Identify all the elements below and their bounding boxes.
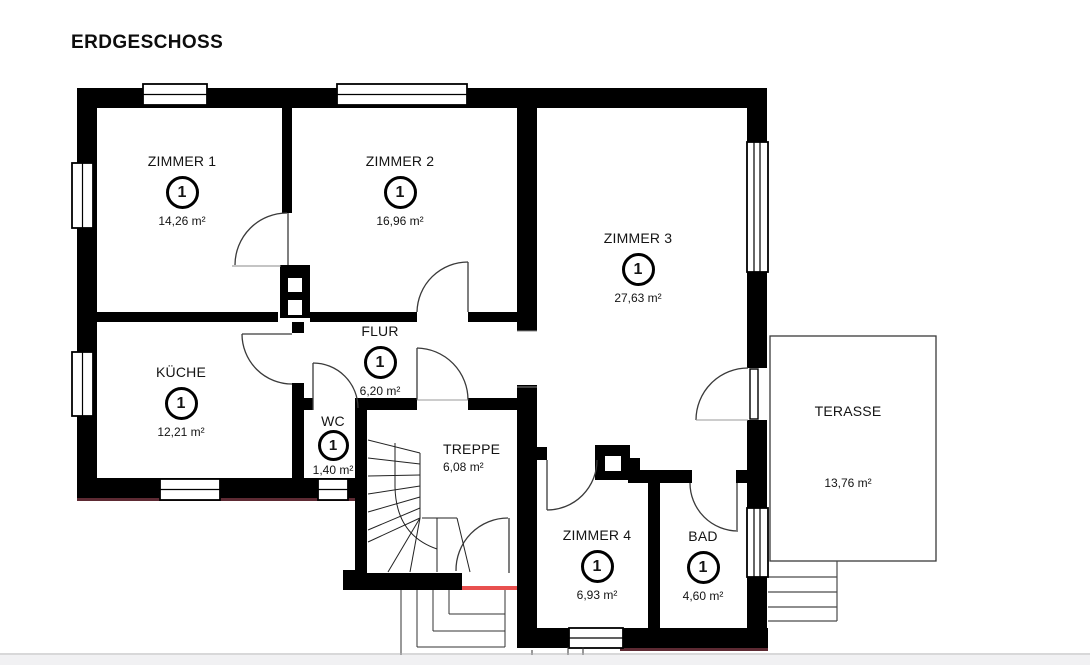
room-label-flur: FLUR 1 6,20 m² [320, 324, 440, 399]
room-area: 13,76 m² [824, 476, 871, 491]
room-marker-badge: 1 [687, 551, 720, 584]
room-label-kueche: KÜCHE 1 12,21 m² [121, 365, 241, 440]
room-name: FLUR [361, 324, 398, 338]
door-arc-zimmer4 [547, 460, 597, 510]
room-name: TERASSE [815, 404, 882, 418]
floorplan-page: ERDGESCHOSS ZIMMER 1 1 14,26 m² ZIMMER 2… [0, 0, 1090, 665]
room-name: TREPPE [443, 442, 500, 456]
room-name: BAD [688, 529, 717, 543]
room-area: 14,26 m² [158, 214, 205, 229]
room-name: ZIMMER 3 [604, 231, 673, 245]
room-area: 1,40 m² [313, 463, 354, 478]
room-marker-badge: 1 [384, 176, 417, 209]
room-name: ZIMMER 4 [563, 528, 632, 542]
door-arc-bad [690, 483, 738, 531]
room-marker-badge: 1 [364, 346, 397, 379]
room-label-terasse: TERASSE 13,76 m² [788, 404, 908, 491]
room-marker-badge: 1 [622, 253, 655, 286]
room-label-zimmer4: ZIMMER 4 1 6,93 m² [537, 528, 657, 603]
room-area: 6,08 m² [443, 460, 484, 475]
page-title: ERDGESCHOSS [71, 32, 223, 54]
room-name: KÜCHE [156, 365, 206, 379]
room-name: ZIMMER 2 [366, 154, 435, 168]
door-arc-terrace [696, 368, 748, 420]
room-area: 27,63 m² [614, 291, 661, 306]
room-area: 12,21 m² [157, 425, 204, 440]
room-area: 6,93 m² [577, 588, 618, 603]
room-area: 6,20 m² [360, 384, 401, 399]
door-leaf-terrace [750, 369, 758, 419]
room-label-wc: WC 1 1,40 m² [273, 414, 393, 478]
room-label-bad: BAD 1 4,60 m² [643, 529, 763, 604]
room-label-zimmer1: ZIMMER 1 1 14,26 m² [122, 154, 242, 229]
door-arc-zimmer2 [417, 262, 468, 312]
terrace-steps [768, 561, 837, 621]
page-bottom-edge [0, 654, 1090, 665]
room-marker-badge: 1 [166, 176, 199, 209]
door-arc-kueche [242, 334, 292, 384]
room-name: WC [321, 414, 345, 428]
room-label-zimmer3: ZIMMER 3 1 27,63 m² [578, 231, 698, 306]
room-label-treppe: TREPPE 6,08 m² [443, 442, 543, 475]
room-label-zimmer2: ZIMMER 2 1 16,96 m² [340, 154, 460, 229]
room-area: 4,60 m² [683, 589, 724, 604]
room-area: 16,96 m² [376, 214, 423, 229]
room-marker-badge: 1 [318, 430, 349, 461]
room-name: ZIMMER 1 [148, 154, 217, 168]
room-marker-badge: 1 [165, 387, 198, 420]
entrance-threshold [462, 586, 517, 590]
room-marker-badge: 1 [581, 550, 614, 583]
passage-lines [517, 331, 537, 387]
door-arc-zimmer1 [235, 213, 287, 265]
